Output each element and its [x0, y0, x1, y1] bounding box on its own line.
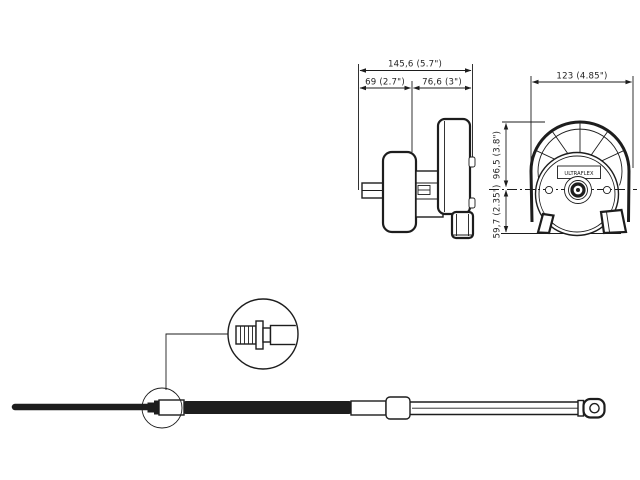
brand-badge-label: ULTRAFLEX [564, 171, 594, 177]
dim-label-right-width: 76,6 (3") [422, 78, 462, 88]
steering-hub [565, 177, 592, 204]
technical-drawing: 145,6 (5.7") 69 (2.7") 76,6 (3") [0, 0, 640, 480]
dim-label-left-width: 69 (2.7") [365, 78, 405, 88]
connector-neck [263, 328, 271, 342]
dim-label-front-width: 123 (4.85") [556, 72, 607, 82]
mounting-hole-right [603, 186, 610, 193]
connector-threads [236, 326, 256, 344]
side-view-body [362, 119, 475, 238]
helm-front-view: 123 (4.85") 96,5 (3.8") 59,7 (2.35") ULT… [489, 72, 637, 239]
mounting-plate [438, 119, 470, 214]
foot-right [601, 210, 626, 233]
plate-clip-upper [469, 157, 475, 167]
dim-label-lower-height: 59,7 (2.35") [493, 184, 503, 238]
plate-clip-lower [469, 198, 475, 208]
cable-eye-end [584, 399, 605, 418]
mounting-hole-left [545, 186, 552, 193]
connector-tube [271, 326, 300, 345]
helm-bezel [383, 152, 416, 232]
cable-ferrule [351, 401, 386, 415]
cable-nut [386, 397, 410, 419]
foot-left [538, 214, 554, 233]
cable-jacket [184, 401, 351, 414]
dim-label-upper-height: 96,5 (3.8") [493, 131, 503, 179]
helm-side-view: 145,6 (5.7") 69 (2.7") 76,6 (3") [359, 60, 476, 239]
steering-cable [15, 299, 605, 428]
callout-leader-line [166, 334, 229, 390]
connector-flange [256, 321, 263, 349]
drawing-page: 145,6 (5.7") 69 (2.7") 76,6 (3") [0, 0, 640, 480]
output-tube [410, 402, 578, 415]
cable-outlet-foot [452, 212, 473, 238]
front-view-body: ULTRAFLEX [489, 122, 637, 236]
dim-label-overall-width: 145,6 (5.7") [388, 60, 442, 70]
cable-connector [148, 400, 185, 415]
